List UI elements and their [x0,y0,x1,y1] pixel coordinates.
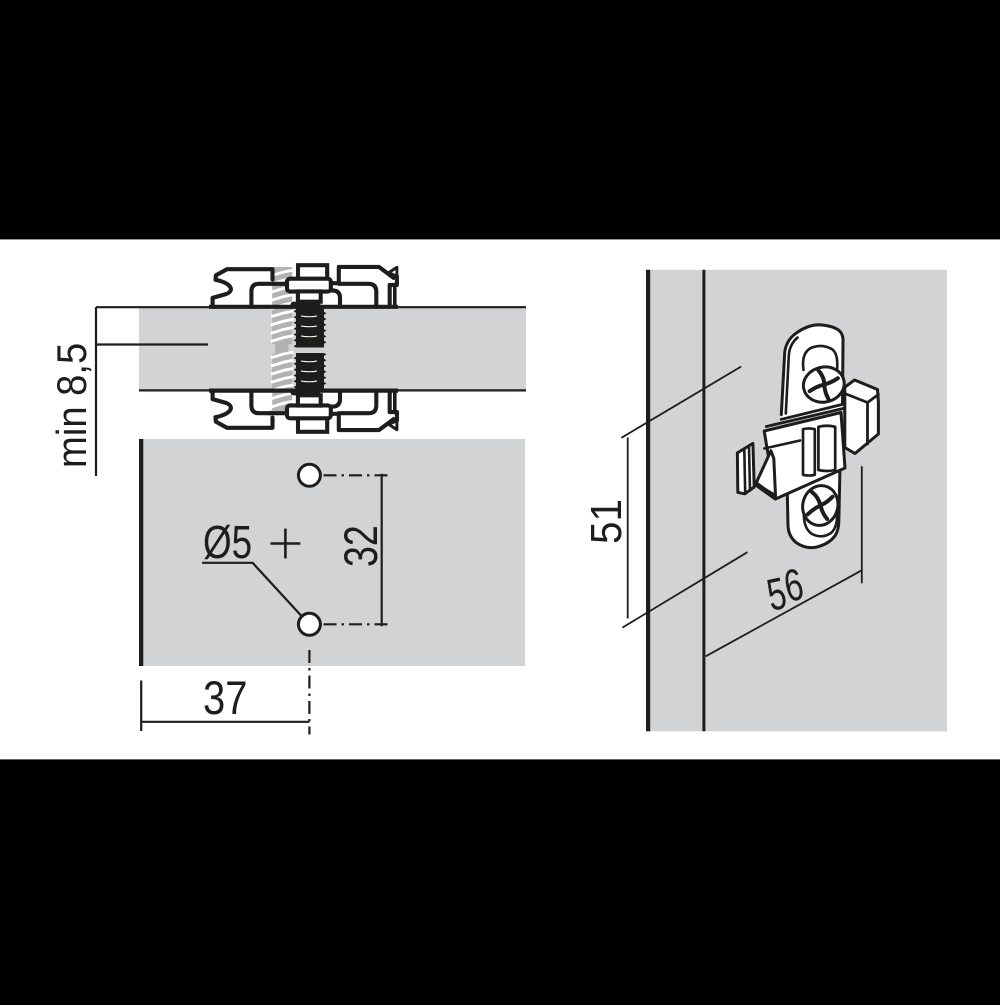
svg-text:51: 51 [581,499,630,544]
svg-text:37: 37 [203,673,247,725]
svg-text:32: 32 [335,525,388,567]
svg-text:min 8,5: min 8,5 [48,343,95,468]
svg-text:Ø5: Ø5 [203,516,252,568]
